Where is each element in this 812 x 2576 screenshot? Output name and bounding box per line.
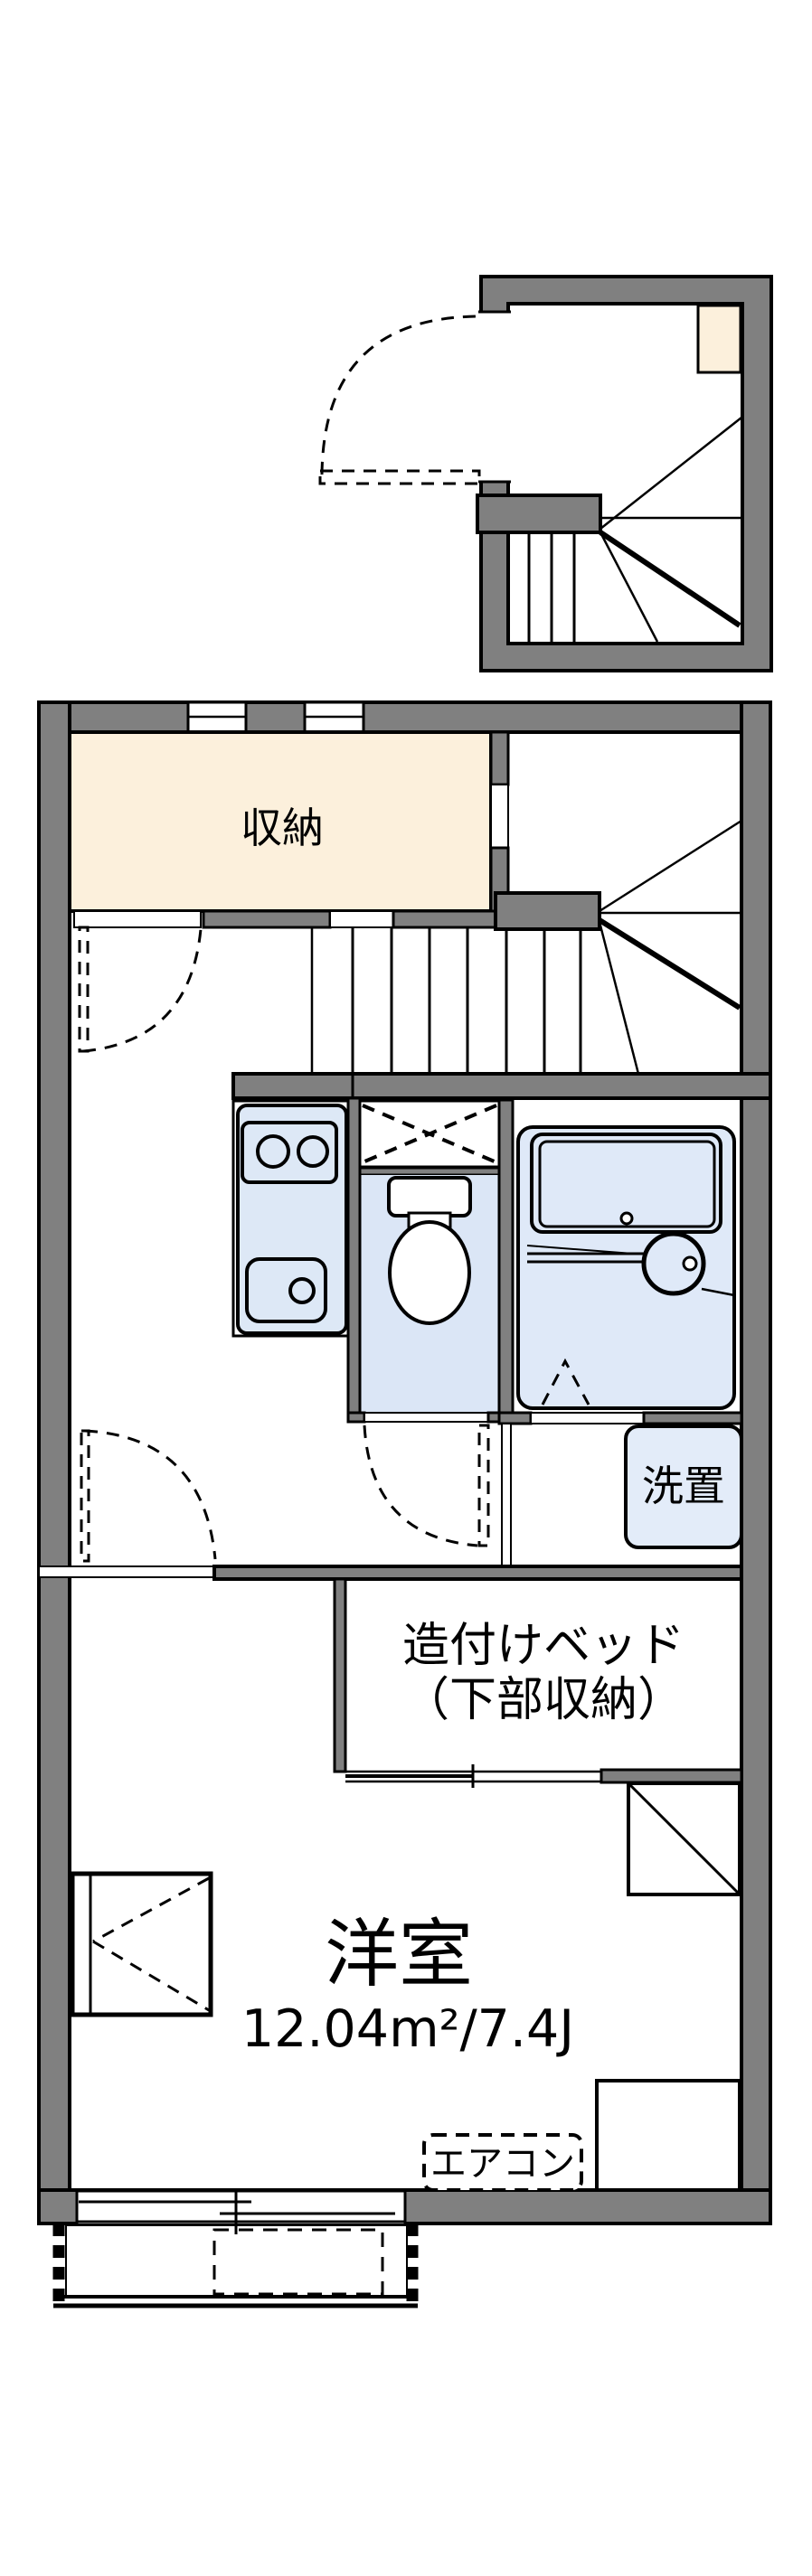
outer-wall-right [741, 702, 770, 2223]
floor-plan-page: 収納 [0, 0, 812, 2576]
stair-side-opening [330, 911, 393, 927]
entrance-door-swing-arc [322, 316, 477, 475]
toilet-door-opening [364, 1413, 488, 1422]
bathroom [499, 1127, 741, 1424]
stairwell-wall-opening [491, 785, 508, 848]
toilet-left-wall [348, 1098, 360, 1422]
wash-area-partition [502, 1424, 511, 1566]
storage-door-swing-arc [83, 929, 201, 1051]
floor-plan-drawing: 収納 [0, 0, 812, 2576]
washing-machine-space [357, 1100, 502, 1175]
toilet-door-swing-arc [364, 1425, 477, 1546]
kitchen [233, 1101, 351, 1336]
bath-door-opening [531, 1413, 644, 1424]
outer-wall-left [39, 702, 70, 2223]
bath-door-knob [684, 1257, 696, 1270]
bath-bottom-wall [499, 1413, 531, 1424]
western-room: 洋室 12.04m²/7.4J エアコン [72, 1783, 740, 2234]
bed-room-left-wall [335, 1579, 345, 1772]
air-conditioner: エアコン [424, 2135, 581, 2190]
side-window [72, 1874, 211, 2015]
air-conditioner-label: エアコン [430, 2143, 575, 2185]
bathtub-drain [621, 1213, 632, 1224]
top-wall-window-right [305, 702, 364, 732]
toilet-bowl [390, 1222, 469, 1323]
outer-wall-top [39, 702, 770, 732]
western-room-label: 洋室 [325, 1912, 473, 1998]
balcony-floor-edge [66, 2225, 407, 2296]
stove-burner [298, 1137, 327, 1166]
room-door-opening [39, 1566, 214, 1577]
washer-bottom-wall [357, 1168, 502, 1175]
western-room-area-label: 12.04m²/7.4J [241, 1999, 574, 2059]
storage-bottom-wall [203, 911, 330, 927]
toilet-tank [389, 1178, 470, 1216]
stair-landing-wall-upper [477, 495, 600, 532]
stairwell-left-wall [491, 732, 508, 785]
entrance-door-opening [477, 312, 513, 482]
built-in-bed-room: 造付けベッド （下部収納） [39, 1566, 741, 1788]
room-door-swing-arc [85, 1431, 215, 1559]
storage-bottom-wall [393, 911, 508, 927]
storage-box [597, 2081, 740, 2190]
stairwell-bottom-wall [233, 1074, 770, 1098]
storage-room: 収納 [70, 732, 508, 1051]
entrance-door-leaf [320, 471, 479, 484]
balcony-lower-floor-outline [214, 2230, 382, 2294]
bed-bottom-wall [601, 1770, 741, 1782]
storage-room-label: 収納 [241, 804, 324, 852]
top-wall-window-left [188, 702, 246, 732]
toilet-bottom-wall [348, 1413, 364, 1422]
bath-bottom-wall [644, 1413, 741, 1424]
balcony [53, 2223, 418, 2307]
stair-winder-line-thick [600, 920, 740, 1008]
storage-door-leaf [80, 927, 88, 1051]
room-door-leaf [81, 1431, 89, 1561]
toilet-right-wall [499, 1100, 513, 1422]
stair-winder-line [600, 922, 638, 1074]
entrance-shoe-cabinet [698, 306, 741, 372]
hall [81, 1431, 215, 1561]
bed-label-line2: （下部収納） [402, 1673, 685, 1727]
bottom-sliding-window [77, 2190, 405, 2234]
stair-winder-line [600, 821, 741, 911]
toilet-door-leaf [479, 1425, 488, 1546]
laundry-space-label: 洗置 [642, 1462, 725, 1510]
sink-drain [290, 1279, 314, 1302]
bed-label-line1: 造付けベッド [402, 1619, 685, 1673]
wash-area: 洗置 [502, 1424, 741, 1566]
stair-landing-wall [496, 893, 600, 929]
storage-door-opening [74, 911, 201, 927]
bed-room-top-wall [214, 1566, 741, 1579]
entrance-stair-block [320, 277, 771, 671]
stove-burner [258, 1136, 288, 1167]
